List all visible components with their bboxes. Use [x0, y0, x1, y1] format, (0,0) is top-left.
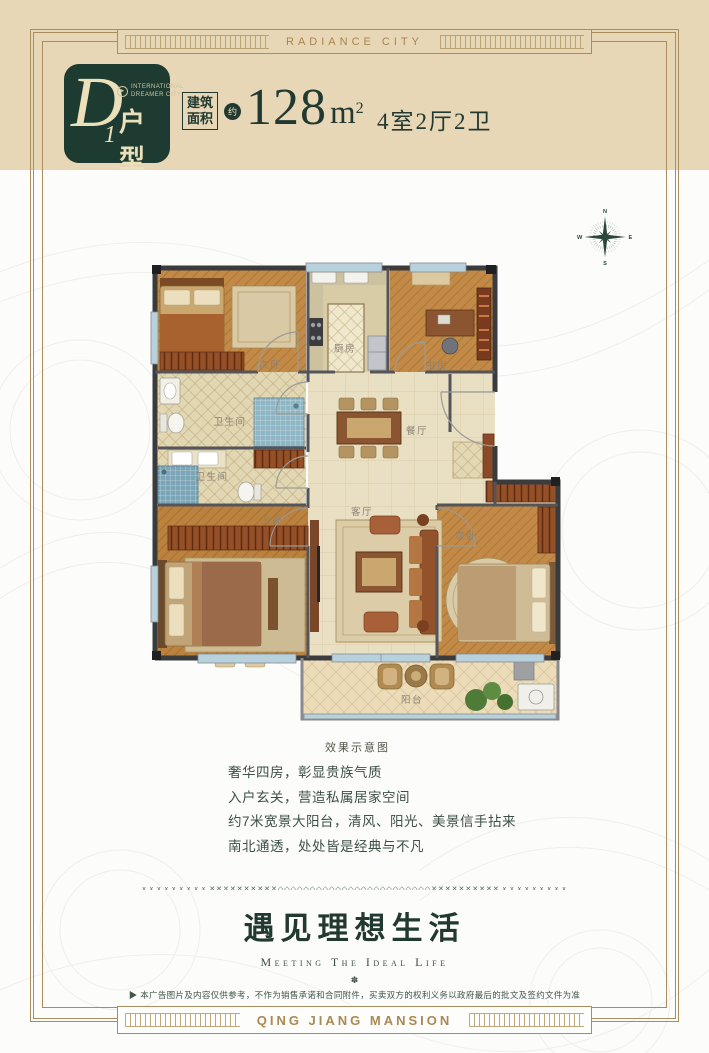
label-dining: 餐厅 — [406, 425, 428, 437]
compass-s: S — [603, 261, 607, 267]
label-kitchen: 厨房 — [334, 343, 356, 355]
area-label-line1: 建筑 — [187, 95, 213, 111]
top-banner-text: RADIANCE CITY — [276, 36, 433, 48]
badge-suffix: 户型 — [119, 102, 170, 176]
compass-rose: N E S W — [575, 204, 635, 270]
rooms-spec: 4室2厅2卫 — [377, 102, 493, 136]
compass-n: N — [603, 209, 607, 215]
compass-e: E — [628, 235, 632, 241]
feature-line: 奢华四房，彰显贵族气质 — [228, 761, 516, 786]
master-bedroom-set — [158, 526, 308, 652]
area-unit: m2 — [330, 97, 364, 130]
label-bedroom-top: 次卧 — [259, 359, 281, 371]
bottom-banner-text: QING JIANG MANSION — [247, 1013, 463, 1028]
disclaimer-text: ▶ 本广告图片及内容仅供参考，不作为销售承诺和合同附件，买卖双方的权利义务以政府… — [0, 989, 709, 1001]
fret-pattern-left — [125, 1013, 240, 1027]
brand-lines: INTERNATIONAL DREAMER CITY — [131, 83, 184, 99]
area-label-line2: 面积 — [187, 111, 213, 127]
unit-type-badge: D 1 户型 ▶ INTERNATIONAL DREAMER CITY — [64, 64, 170, 163]
floor-plan: 次卧 厨房 书房 卫生间 卫生间 餐厅 客厅 主卧 次卧 阳台 — [145, 252, 570, 734]
feature-line: 约7米宽景大阳台，清风、阳光、美景信手拈来 — [228, 810, 516, 835]
fret-pattern-left — [125, 35, 269, 49]
approx-circle: 约 — [224, 103, 241, 120]
ornamental-divider: x x x x x x x x x ✕✕✕✕✕✕✕✕✕✕◇◇◇◇◇◇◇◇◇◇◇◇… — [45, 878, 664, 890]
feature-line: 南北通透，处处皆是经典与不凡 — [228, 835, 516, 860]
label-bath2: 卫生间 — [195, 471, 228, 483]
compass-w: W — [577, 235, 583, 241]
label-master: 主卧 — [261, 514, 283, 526]
feature-line: 入户玄关，营造私属居家空间 — [228, 786, 516, 811]
label-living: 客厅 — [351, 506, 373, 518]
brand-line2: DREAMER CITY — [131, 92, 181, 98]
play-icon: ▶ — [117, 86, 128, 97]
label-bath1: 卫生间 — [213, 416, 246, 428]
badge-number: 1 — [104, 122, 116, 149]
badge-brand: ▶ INTERNATIONAL DREAMER CITY — [117, 83, 184, 99]
poster-page: RADIANCE CITY D 1 户型 ▶ INTERNATIONAL DRE… — [0, 0, 709, 1053]
dining-set — [337, 398, 401, 458]
label-bedroom-bottom: 次卧 — [455, 530, 477, 542]
plan-caption: 效果示意图 — [145, 739, 570, 755]
flower-ornament-icon: ✽ — [0, 975, 709, 986]
top-banner: RADIANCE CITY — [117, 29, 592, 54]
bottom-banner: QING JIANG MANSION — [117, 1006, 592, 1034]
fret-pattern-right — [469, 1013, 584, 1027]
feature-list: 奢华四房，彰显贵族气质 入户玄关，营造私属居家空间 约7米宽景大阳台，清风、阳光… — [228, 761, 516, 859]
label-balcony: 阳台 — [401, 694, 423, 706]
slogan-title: 遇见理想生活 — [0, 903, 709, 948]
label-study: 书房 — [426, 360, 448, 372]
brand-line1: INTERNATIONAL — [131, 84, 184, 90]
fret-pattern-right — [440, 35, 584, 49]
area-value: 128 — [246, 82, 327, 134]
area-label-box: 建筑 面积 — [182, 92, 218, 130]
slogan-subtitle: Meeting The Ideal Life — [0, 955, 709, 970]
